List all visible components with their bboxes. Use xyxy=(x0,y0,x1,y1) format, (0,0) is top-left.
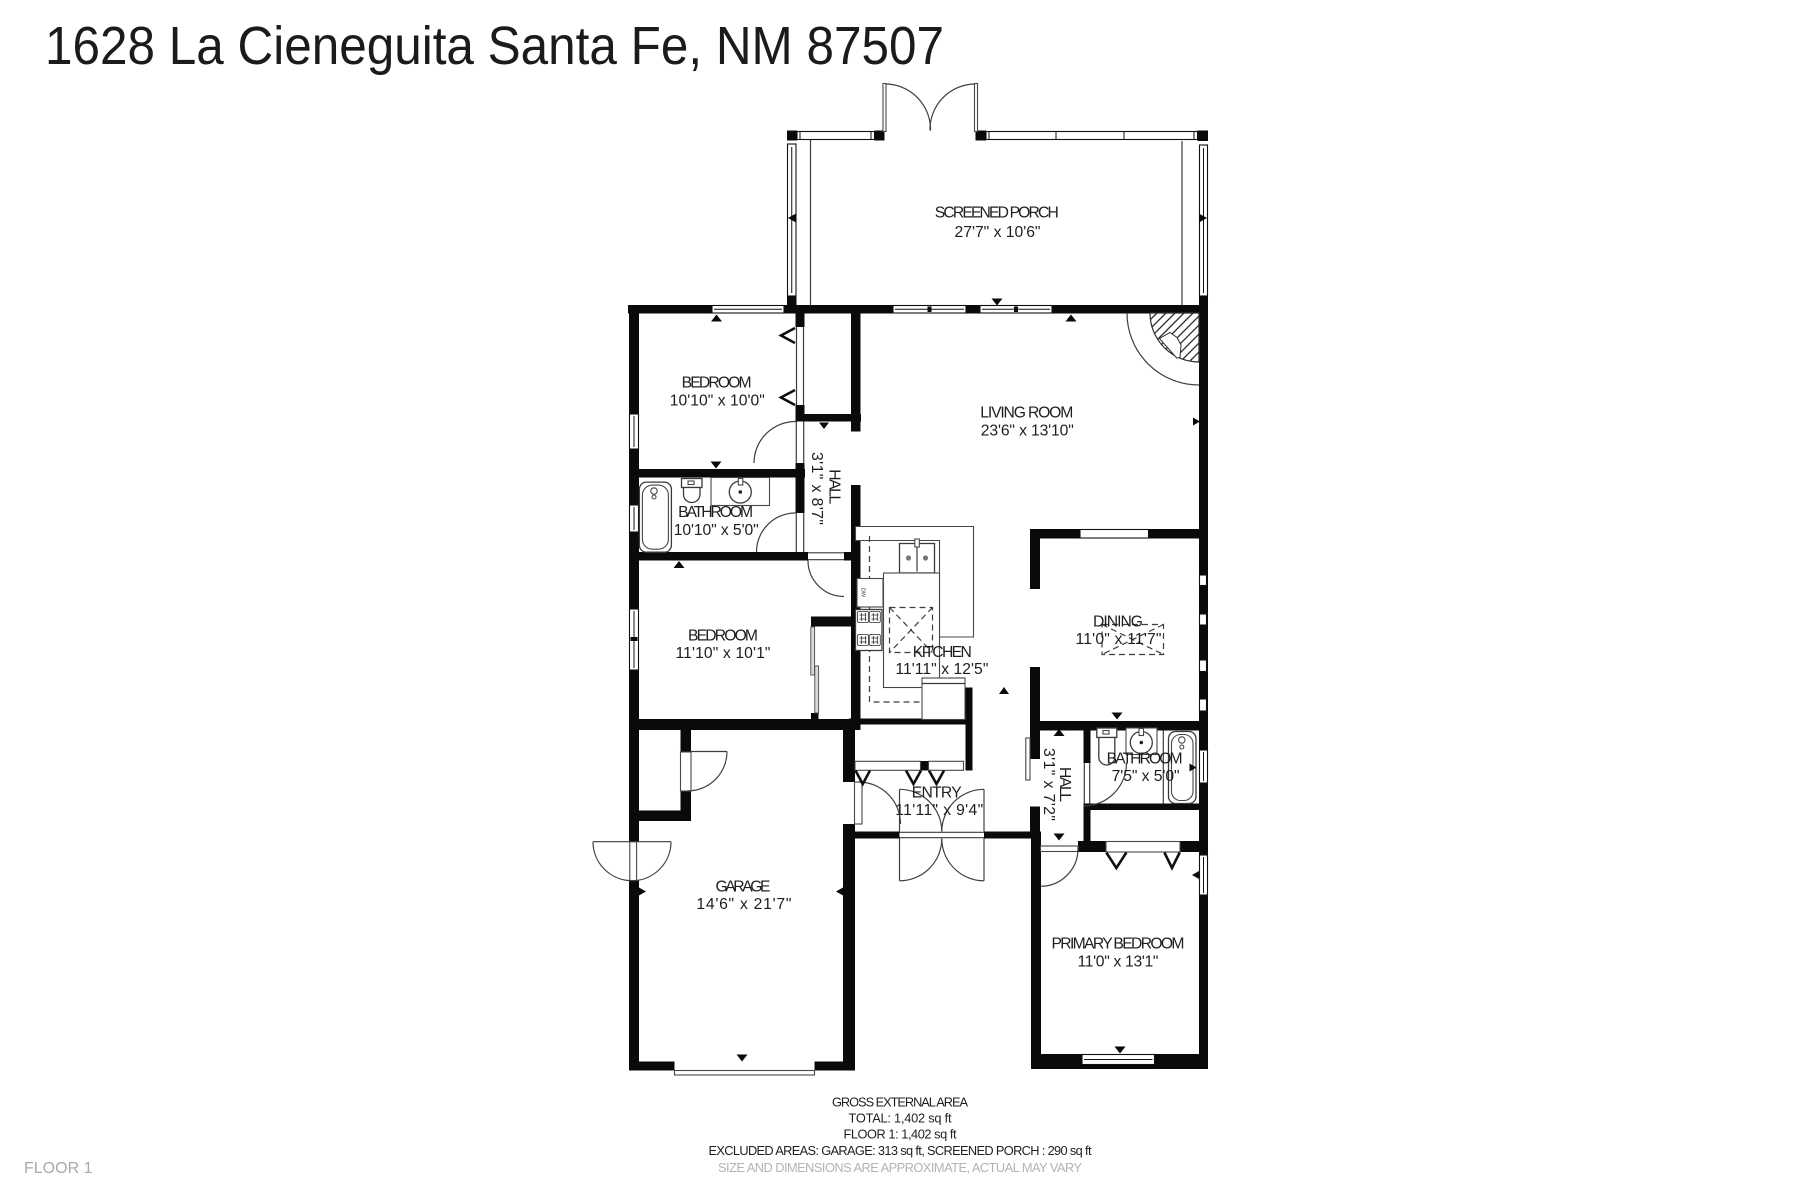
svg-text:BEDROOM: BEDROOM xyxy=(682,375,752,392)
svg-text:TOTAL: 1,402 sq ft: TOTAL: 1,402 sq ft xyxy=(849,1111,952,1126)
svg-text:3'1" x 8'7": 3'1" x 8'7" xyxy=(808,452,825,525)
svg-text:LIVING ROOM: LIVING ROOM xyxy=(980,405,1073,422)
svg-text:7'5" x 5'0": 7'5" x 5'0" xyxy=(1112,768,1180,785)
svg-text:11'0" x 11'7": 11'0" x 11'7" xyxy=(1076,631,1162,648)
svg-text:10'10" x 10'0": 10'10" x 10'0" xyxy=(670,393,765,410)
svg-text:14'6" x 21'7": 14'6" x 21'7" xyxy=(696,896,791,913)
svg-text:27'7" x 10'6": 27'7" x 10'6" xyxy=(955,224,1041,241)
svg-text:11'10" x 10'1": 11'10" x 10'1" xyxy=(676,645,771,662)
svg-text:BEDROOM: BEDROOM xyxy=(688,628,758,645)
svg-text:HALL: HALL xyxy=(826,469,843,504)
svg-text:1628 La Cieneguita Santa Fe, N: 1628 La Cieneguita Santa Fe, NM 87507 xyxy=(45,16,944,76)
svg-text:BATHROOM: BATHROOM xyxy=(678,504,753,521)
svg-text:EXCLUDED AREAS: GARAGE: 313 sq: EXCLUDED AREAS: GARAGE: 313 sq ft, SCREE… xyxy=(709,1143,1092,1158)
svg-text:11'11" x 12'5": 11'11" x 12'5" xyxy=(895,661,988,678)
svg-text:KITCHEN: KITCHEN xyxy=(913,644,972,661)
svg-text:10'10" x 5'0": 10'10" x 5'0" xyxy=(674,522,759,539)
svg-text:PRIMARY BEDROOM: PRIMARY BEDROOM xyxy=(1052,936,1185,953)
svg-text:FLOOR 1: 1,402 sq ft: FLOOR 1: 1,402 sq ft xyxy=(844,1127,957,1142)
svg-text:GARAGE: GARAGE xyxy=(716,879,771,896)
svg-text:FLOOR 1: FLOOR 1 xyxy=(24,1160,93,1177)
svg-text:3'1" x 7'2": 3'1" x 7'2" xyxy=(1040,748,1057,821)
svg-text:SIZE AND DIMENSIONS ARE APPROX: SIZE AND DIMENSIONS ARE APPROXIMATE, ACT… xyxy=(718,1160,1082,1175)
svg-text:DW: DW xyxy=(860,588,866,598)
svg-text:HALL: HALL xyxy=(1056,767,1073,802)
svg-text:ENTRY: ENTRY xyxy=(912,785,963,802)
svg-text:DINING: DINING xyxy=(1093,614,1143,631)
svg-text:BATHROOM: BATHROOM xyxy=(1107,751,1183,768)
svg-text:GROSS EXTERNAL AREA: GROSS EXTERNAL AREA xyxy=(832,1095,968,1110)
svg-text:11'11" x 9'4": 11'11" x 9'4" xyxy=(895,802,983,819)
svg-text:SCREENED PORCH: SCREENED PORCH xyxy=(935,205,1059,222)
svg-text:23'6" x 13'10": 23'6" x 13'10" xyxy=(981,423,1074,440)
svg-text:11'0" x 13'1": 11'0" x 13'1" xyxy=(1078,954,1159,971)
